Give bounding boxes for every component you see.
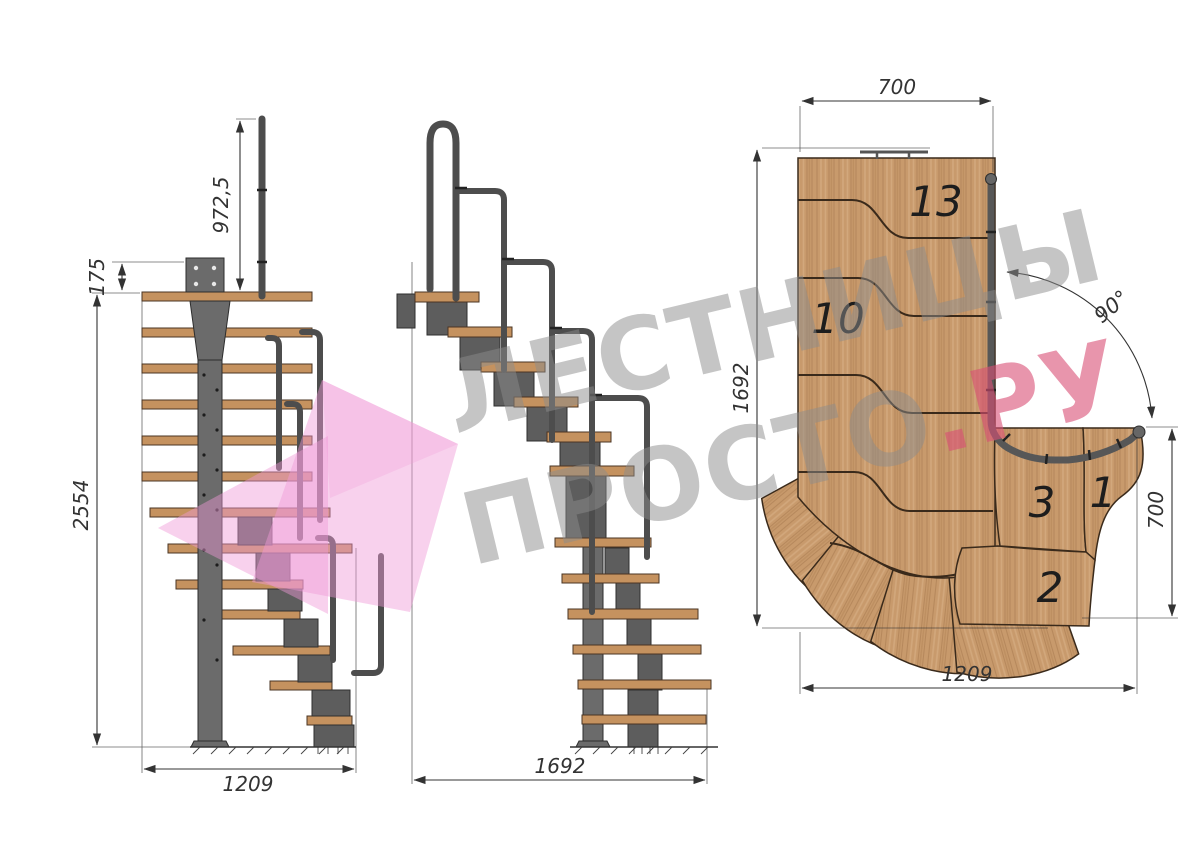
side-ground-hatch (575, 747, 708, 754)
side-anchor-bolts (634, 747, 658, 754)
tread (415, 292, 479, 302)
column-funnel (190, 301, 230, 360)
plan-dim-right-width: 700 (1144, 491, 1168, 529)
front-dim-bracket-offset: 175 (85, 258, 109, 296)
side-column-foot (576, 741, 610, 747)
tread (573, 645, 701, 654)
side-rail-loop (430, 124, 456, 298)
front-ground-hatch (193, 747, 344, 754)
wall-mount-plate (186, 258, 224, 292)
tread (578, 680, 711, 689)
tread (142, 364, 312, 373)
tread (307, 716, 352, 725)
handrail-end-cap (1133, 426, 1145, 438)
tread (582, 715, 706, 724)
side-dimensions: 1692 (414, 754, 705, 780)
base-module (314, 725, 354, 747)
plan-dim-bottom-length: 1209 (942, 662, 993, 686)
step-label-1: 1 (1090, 468, 1117, 517)
front-dim-width: 1209 (223, 772, 274, 796)
column-foot (191, 741, 229, 747)
tread (142, 328, 312, 337)
step-label-2: 2 (1037, 563, 1064, 612)
tread (142, 436, 312, 445)
plan-dim-top-width: 700 (878, 75, 916, 99)
front-dim-total-height: 2554 (69, 480, 93, 531)
drawing-canvas: 972,5 175 2554 1209 (0, 0, 1200, 849)
side-wall-bracket (397, 294, 415, 328)
tread (142, 292, 312, 301)
plan-step-2 (955, 546, 1095, 626)
staircase-technical-drawing: 972,5 175 2554 1209 (0, 0, 1200, 849)
step-label-3: 3 (1029, 478, 1056, 527)
side-dim-length: 1692 (535, 754, 586, 778)
tread (562, 574, 659, 583)
front-dim-rail-height: 972,5 (209, 176, 233, 233)
tread (568, 609, 698, 619)
